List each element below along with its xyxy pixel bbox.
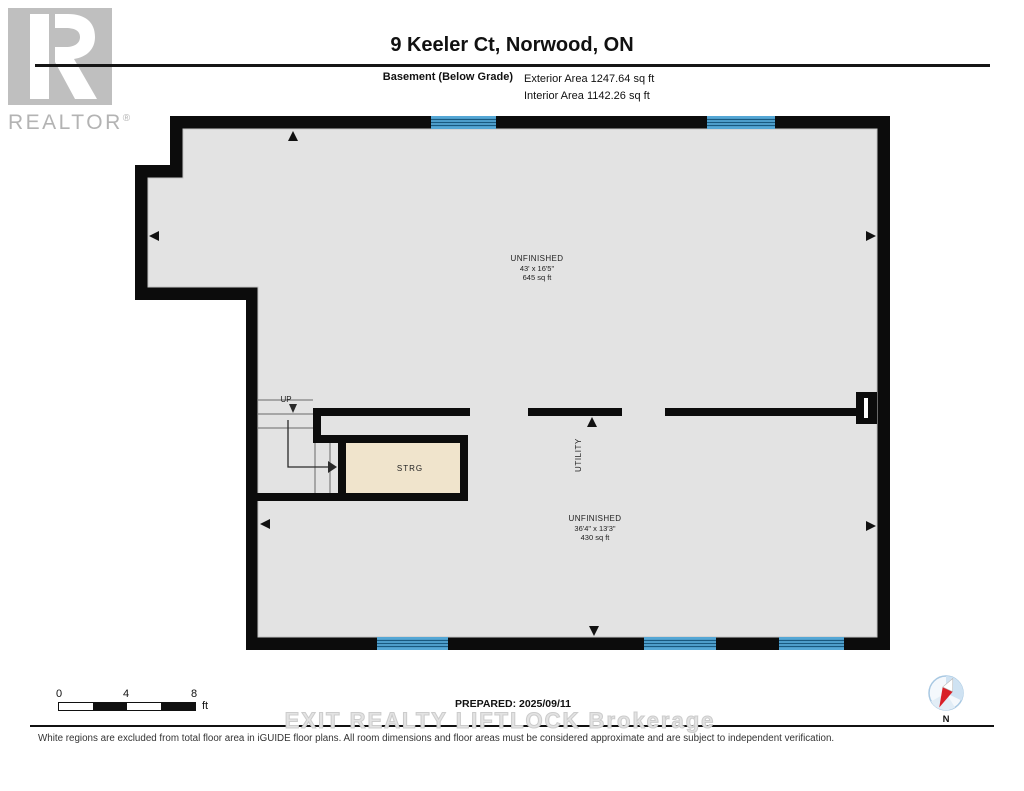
room-label-unfinished-upper: UNFINISHED: [511, 254, 564, 263]
room-dims-unfinished-upper: 43' x 16'5": [520, 264, 555, 273]
floor-plan-page: REALTOR® 9 Keeler Ct, Norwood, ON Baseme…: [0, 0, 1024, 791]
disclaimer-text: White regions are excluded from total fl…: [38, 733, 998, 744]
room-label-utility: UTILITY: [574, 438, 583, 472]
room-area-unfinished-lower: 430 sq ft: [581, 533, 611, 542]
exterior-area: Exterior Area 1247.64 sq ft: [524, 71, 654, 88]
window: [431, 116, 496, 129]
compass-north-label: N: [943, 714, 950, 725]
scale-unit: ft: [202, 700, 208, 712]
window: [707, 116, 775, 129]
scale-bar: 0 4 8 ft: [58, 688, 278, 714]
brokerage-watermark: EXIT REALTY LIFTLOCK Brokerage: [285, 708, 716, 734]
scale-tick: 8: [191, 688, 197, 700]
door-jamb: [856, 392, 877, 424]
room-label-unfinished-lower: UNFINISHED: [569, 514, 622, 523]
compass: N: [922, 670, 970, 731]
window: [779, 637, 844, 650]
room-dims-unfinished-lower: 36'4" x 13'3": [574, 524, 615, 533]
window: [377, 637, 448, 650]
floor-label: Basement (Below Grade): [0, 71, 513, 83]
scale-tick: 4: [123, 688, 129, 700]
room-label-storage: STRG: [397, 464, 423, 473]
scale-bar-ruler: [58, 702, 196, 711]
interior-area: Interior Area 1142.26 sq ft: [524, 88, 654, 105]
room-area-unfinished-upper: 645 sq ft: [523, 273, 553, 282]
scale-tick: 0: [56, 688, 62, 700]
page-title: 9 Keeler Ct, Norwood, ON: [0, 34, 1024, 57]
area-summary: Exterior Area 1247.64 sq ft Interior Are…: [524, 71, 654, 104]
compass-icon: N: [922, 670, 970, 726]
stairs-up-label: UP: [280, 395, 291, 404]
window: [644, 637, 716, 650]
title-divider: [35, 64, 990, 67]
floor-plan-svg: UNFINISHED 43' x 16'5" 645 sq ft UNFINIS…: [130, 108, 900, 660]
realtor-logo-text: REALTOR®: [8, 111, 130, 135]
